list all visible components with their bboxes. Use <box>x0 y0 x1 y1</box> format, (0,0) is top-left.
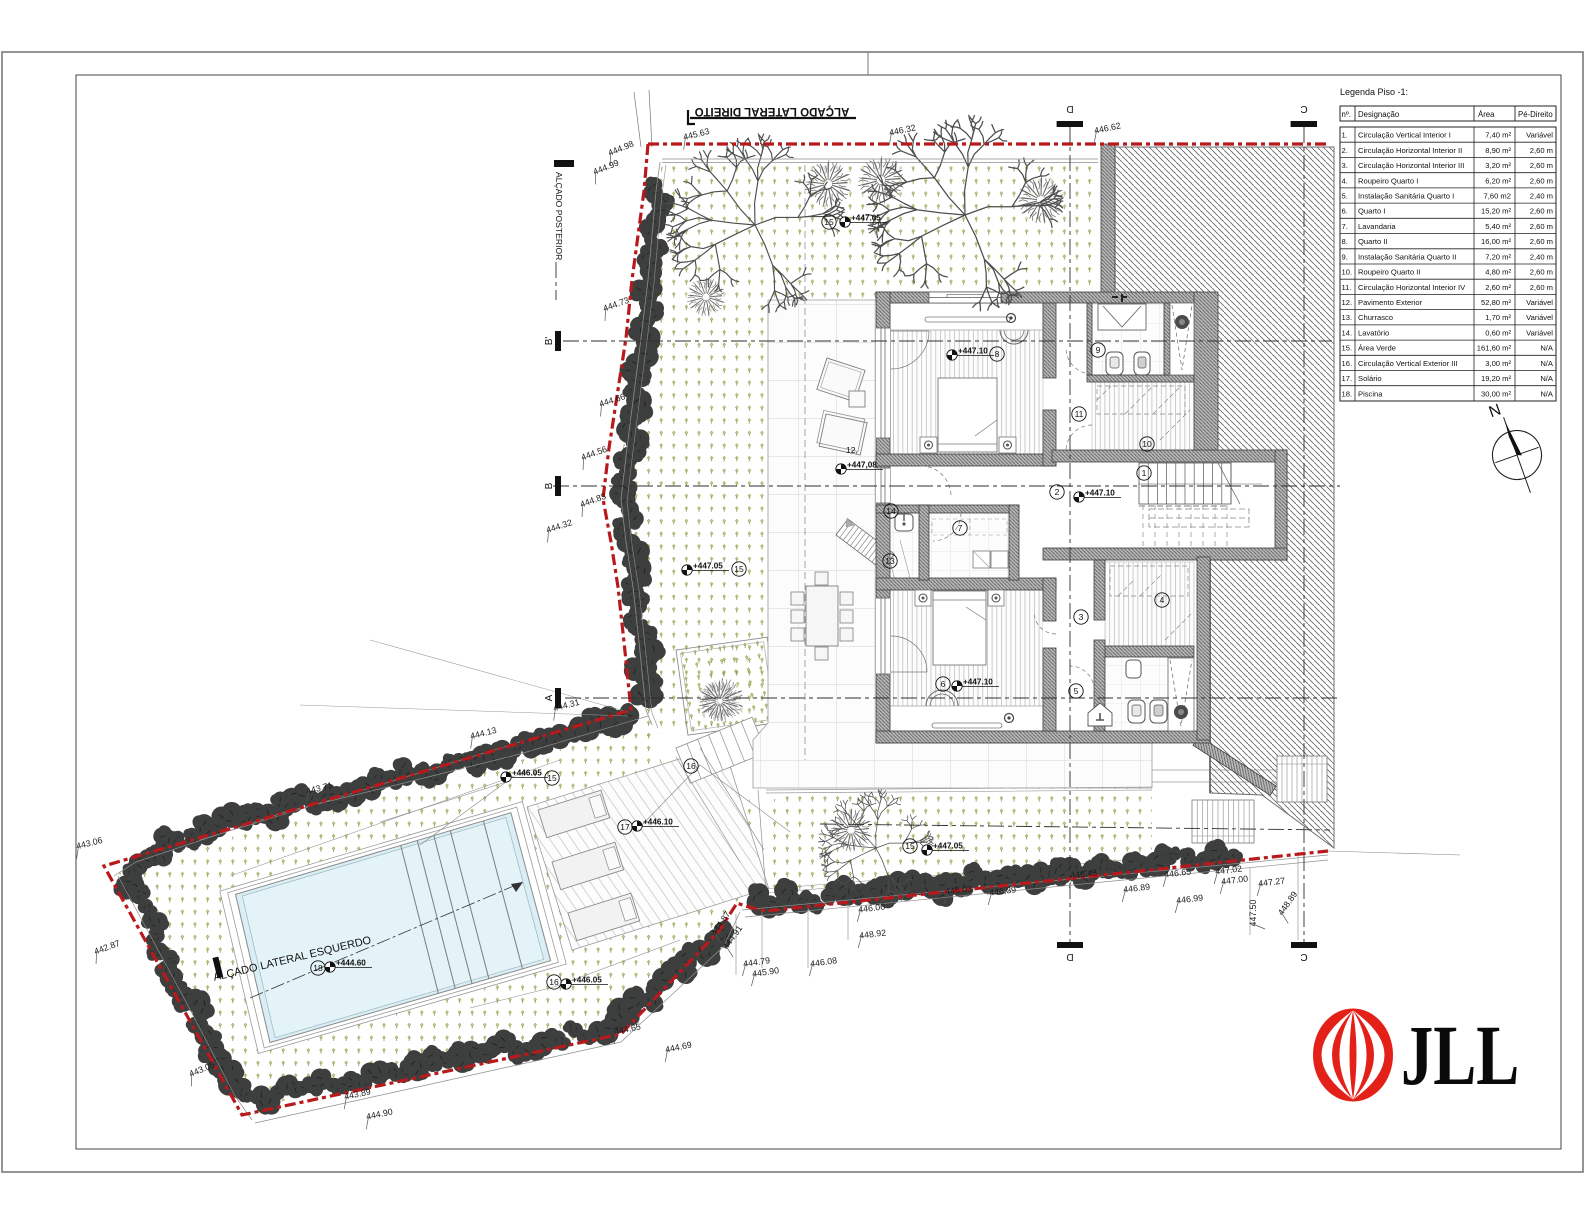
svg-text:C: C <box>1300 951 1307 962</box>
svg-text:+447.05: +447.05 <box>933 842 963 851</box>
svg-text:3,00 m²: 3,00 m² <box>1485 359 1511 368</box>
svg-text:Solário: Solário <box>1358 374 1382 383</box>
svg-text:+446.10: +446.10 <box>643 818 673 827</box>
svg-text:4: 4 <box>1160 595 1165 605</box>
svg-text:Circulação Horizontal Interior: Circulação Horizontal Interior IV <box>1358 283 1466 292</box>
svg-text:Churrasco: Churrasco <box>1358 313 1393 322</box>
svg-text:10.: 10. <box>1342 268 1353 277</box>
svg-text:Área Verde: Área Verde <box>1358 344 1396 353</box>
svg-text:3.: 3. <box>1342 161 1348 170</box>
svg-text:9: 9 <box>1096 345 1101 355</box>
svg-text:2,60 m: 2,60 m <box>1530 161 1553 170</box>
svg-text:12.: 12. <box>1342 298 1353 307</box>
svg-text:A: A <box>544 694 555 701</box>
svg-text:ALÇADO POSTERIOR: ALÇADO POSTERIOR <box>554 172 564 260</box>
svg-text:4,80 m²: 4,80 m² <box>1485 268 1511 277</box>
svg-text:161,60 m²: 161,60 m² <box>1477 344 1512 353</box>
svg-text:Instalação Sanitária Quarto I: Instalação Sanitária Quarto I <box>1358 192 1454 201</box>
svg-text:16: 16 <box>549 977 559 987</box>
svg-text:19,20 m²: 19,20 m² <box>1481 374 1511 383</box>
svg-text:Circulação Horizontal Interior: Circulação Horizontal Interior II <box>1358 146 1462 155</box>
svg-text:Roupeiro Quarto II: Roupeiro Quarto II <box>1358 268 1420 277</box>
svg-text:9.: 9. <box>1342 252 1348 261</box>
svg-text:Variável: Variável <box>1526 298 1553 307</box>
svg-text:0,60 m²: 0,60 m² <box>1485 329 1511 338</box>
svg-text:16: 16 <box>686 761 696 771</box>
svg-text:52,80 m²: 52,80 m² <box>1481 298 1511 307</box>
svg-text:16.: 16. <box>1342 359 1353 368</box>
svg-text:Variável: Variável <box>1526 329 1553 338</box>
svg-text:N/A: N/A <box>1540 359 1554 368</box>
svg-text:15: 15 <box>547 773 557 783</box>
svg-text:D: D <box>1066 951 1073 962</box>
svg-text:14.: 14. <box>1342 329 1353 338</box>
svg-text:2,60 m: 2,60 m <box>1530 222 1553 231</box>
svg-text:2,60 m: 2,60 m <box>1530 207 1553 216</box>
svg-text:15: 15 <box>734 564 744 574</box>
svg-text:18: 18 <box>313 963 323 973</box>
svg-text:6: 6 <box>941 679 946 689</box>
svg-text:7: 7 <box>958 523 963 533</box>
svg-text:Variável: Variável <box>1526 131 1553 140</box>
svg-text:Pavimento Exterior: Pavimento Exterior <box>1358 298 1423 307</box>
svg-text:C: C <box>1300 103 1307 114</box>
svg-text:Piscina: Piscina <box>1358 389 1383 398</box>
svg-text:1.: 1. <box>1342 131 1348 140</box>
svg-text:Quarto I: Quarto I <box>1358 207 1385 216</box>
svg-text:18.: 18. <box>1342 389 1353 398</box>
svg-text:nº.: nº. <box>1342 110 1351 119</box>
svg-text:+446.05: +446.05 <box>572 976 602 985</box>
svg-text:2,40 m: 2,40 m <box>1530 252 1553 261</box>
svg-text:2,40 m: 2,40 m <box>1530 192 1553 201</box>
svg-text:15,20 m²: 15,20 m² <box>1481 207 1511 216</box>
svg-text:15: 15 <box>824 217 834 227</box>
svg-text:+447.05: +447.05 <box>693 562 723 571</box>
svg-text:Circulação Vertical Interior I: Circulação Vertical Interior I <box>1358 131 1451 140</box>
svg-text:Área: Área <box>1478 110 1495 119</box>
svg-text:15.: 15. <box>1342 344 1353 353</box>
svg-text:Pé-Direito: Pé-Direito <box>1518 110 1553 119</box>
svg-text:3,20 m²: 3,20 m² <box>1485 161 1511 170</box>
svg-text:N/A: N/A <box>1540 344 1554 353</box>
svg-text:16,00 m²: 16,00 m² <box>1481 237 1511 246</box>
svg-text:14: 14 <box>886 506 896 516</box>
svg-text:Lavandaria: Lavandaria <box>1358 222 1396 231</box>
svg-text:8,90 m²: 8,90 m² <box>1485 146 1511 155</box>
svg-text:Designação: Designação <box>1358 110 1400 119</box>
svg-text:13.: 13. <box>1342 313 1353 322</box>
svg-text:6,20 m²: 6,20 m² <box>1485 176 1511 185</box>
svg-text:30,00 m²: 30,00 m² <box>1481 389 1511 398</box>
svg-text:1,70 m²: 1,70 m² <box>1485 313 1511 322</box>
svg-text:5,40 m²: 5,40 m² <box>1485 222 1511 231</box>
svg-text:Instalação Sanitária Quarto II: Instalação Sanitária Quarto II <box>1358 252 1456 261</box>
svg-text:Lavatório: Lavatório <box>1358 329 1389 338</box>
svg-text:N/A: N/A <box>1540 374 1554 383</box>
svg-text:11.: 11. <box>1342 283 1352 292</box>
svg-text:2.: 2. <box>1342 146 1348 155</box>
svg-text:8: 8 <box>995 349 1000 359</box>
svg-text:7.: 7. <box>1342 222 1348 231</box>
svg-text:6.: 6. <box>1342 207 1348 216</box>
svg-text:15: 15 <box>905 841 915 851</box>
svg-text:447.50: 447.50 <box>1248 899 1258 926</box>
svg-text:5: 5 <box>1074 686 1079 696</box>
svg-text:2: 2 <box>1055 487 1060 497</box>
svg-text:JLL: JLL <box>1401 1008 1519 1103</box>
svg-text:B': B' <box>544 337 555 346</box>
svg-text:+447.10: +447.10 <box>958 347 988 356</box>
svg-text:+446.05: +446.05 <box>512 769 542 778</box>
svg-text:Variável: Variável <box>1526 313 1553 322</box>
svg-text:8.: 8. <box>1342 237 1348 246</box>
svg-text:7,60 m2: 7,60 m2 <box>1484 192 1511 201</box>
svg-text:N/A: N/A <box>1540 389 1554 398</box>
svg-text:B: B <box>544 482 555 489</box>
svg-text:+447.10: +447.10 <box>1085 489 1115 498</box>
svg-text:10: 10 <box>1142 439 1152 449</box>
svg-text:+447.10: +447.10 <box>963 678 993 687</box>
svg-text:7,20 m²: 7,20 m² <box>1485 252 1511 261</box>
svg-text:12,: 12, <box>846 445 858 455</box>
svg-text:11: 11 <box>1075 409 1084 419</box>
svg-text:+447.05: +447.05 <box>851 214 881 223</box>
svg-text:Legenda Piso -1:: Legenda Piso -1: <box>1340 87 1408 97</box>
svg-text:Circulação Vertical Exterior I: Circulação Vertical Exterior III <box>1358 359 1458 368</box>
svg-text:+444.60: +444.60 <box>336 959 366 968</box>
svg-text:2,60 m: 2,60 m <box>1530 237 1553 246</box>
svg-text:D: D <box>1066 103 1073 114</box>
svg-text:+447,08: +447,08 <box>847 461 877 470</box>
svg-text:7,40 m²: 7,40 m² <box>1485 131 1511 140</box>
svg-text:2,60 m: 2,60 m <box>1530 268 1553 277</box>
svg-text:2,60 m: 2,60 m <box>1530 176 1553 185</box>
svg-text:17.: 17. <box>1342 374 1353 383</box>
svg-text:Roupeiro Quarto I: Roupeiro Quarto I <box>1358 176 1418 185</box>
svg-text:17: 17 <box>620 822 630 832</box>
svg-text:2,60 m: 2,60 m <box>1530 146 1553 155</box>
svg-text:Quarto II: Quarto II <box>1358 237 1388 246</box>
svg-text:4.: 4. <box>1342 176 1348 185</box>
svg-text:Circulação Horizontal Interior: Circulação Horizontal Interior III <box>1358 161 1464 170</box>
svg-text:2,60 m: 2,60 m <box>1530 283 1553 292</box>
svg-text:1: 1 <box>1142 468 1147 478</box>
svg-text:3: 3 <box>1079 612 1084 622</box>
svg-text:2,60 m²: 2,60 m² <box>1485 283 1511 292</box>
svg-text:ALÇADO LATERAL DIREITO: ALÇADO LATERAL DIREITO <box>695 105 850 117</box>
svg-text:5.: 5. <box>1342 192 1348 201</box>
svg-text:13: 13 <box>885 556 895 566</box>
